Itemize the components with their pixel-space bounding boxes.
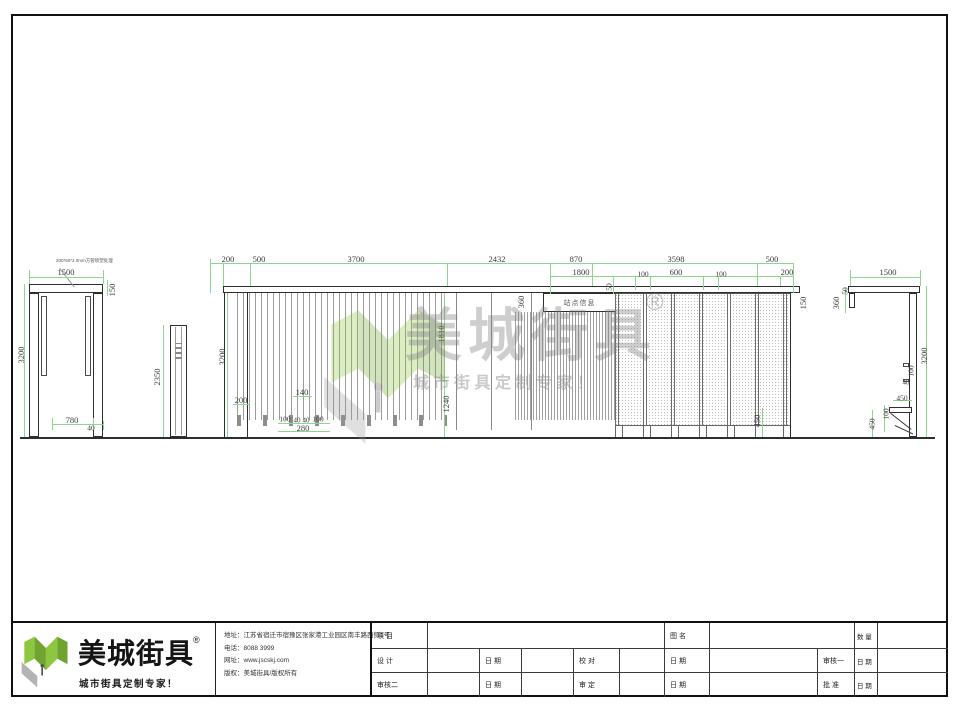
table-label-proofread: 校 对	[574, 649, 620, 672]
dimension-label: 1800	[573, 268, 590, 277]
dim-ext-line	[920, 270, 921, 286]
watermark-brand-text: 美城街具	[405, 308, 657, 365]
dim-ext-line	[850, 270, 851, 286]
dim-ext-line	[250, 263, 251, 286]
sign-frame-slot	[85, 296, 91, 376]
sign-frame-left-post	[29, 293, 39, 437]
brand-name: 美城街具	[78, 640, 194, 668]
sign-frame-slot	[41, 296, 47, 376]
brand-slogan: 城市街具定制专家！	[79, 676, 178, 690]
canopy-front-tab	[849, 293, 855, 308]
dimension-label: 50	[841, 287, 849, 295]
dimension-label: 1500	[880, 268, 897, 277]
dim-line	[762, 408, 763, 437]
sign-frame-top-bar	[29, 284, 103, 293]
drawing-sheet: 200*60*2.0mm方管喷塑处理 站点信息	[0, 0, 960, 704]
dim-ext-line	[635, 276, 636, 290]
table-label-review1: 审核一	[818, 649, 855, 672]
dimension-label: 870	[570, 255, 583, 264]
dimension-label: 450	[896, 394, 907, 402]
dimension-label: 100	[882, 408, 890, 419]
table-label-quantity: 数 量	[855, 623, 878, 648]
table-cell-empty	[878, 623, 948, 648]
dim-line	[163, 325, 164, 437]
dimension-label: 40	[903, 380, 910, 387]
registered-mark-icon: ®	[646, 291, 664, 315]
canopy-side-bar	[848, 286, 920, 293]
table-cell-empty	[878, 673, 948, 697]
dimension-label: 150	[799, 297, 808, 310]
watermark-tagline: 城市街具定制专家！	[413, 376, 598, 392]
dimension-label: 600	[670, 268, 683, 277]
dim-line	[29, 277, 103, 278]
dimension-label: 500	[253, 255, 266, 264]
dimension-label: 3700	[348, 255, 365, 264]
dimension-label: 50	[605, 283, 613, 291]
dimension-label: 100	[279, 415, 290, 423]
dimension-label: 3200	[218, 349, 227, 366]
table-label-date: 日 期	[855, 673, 878, 697]
table-cell-empty	[428, 649, 480, 672]
post-outline	[170, 325, 187, 437]
end-post-line	[790, 293, 791, 437]
dimension-label: 500	[766, 255, 779, 264]
table-cell-empty	[522, 673, 574, 697]
title-block: 美城街具 ® 城市街具定制专家！ 地址：江苏省宿迁市宿豫区张家港工业园区南丰路西…	[11, 621, 948, 697]
contact-address: 地址：江苏省宿迁市宿豫区张家港工业园区南丰路西侧1号	[224, 630, 370, 643]
dim-line	[227, 293, 228, 437]
dimension-label: 3200	[17, 347, 26, 364]
canopy-beam	[223, 286, 800, 293]
table-cell-empty	[710, 623, 855, 648]
table-cell-empty	[522, 649, 574, 672]
dimension-label: 150	[108, 284, 117, 297]
dimension-label: 2432	[489, 255, 506, 264]
table-label-verify: 审 定	[574, 673, 620, 697]
tube-spec-note: 200*60*2.0mm方管喷塑处理	[56, 258, 113, 264]
table-cell-empty	[710, 649, 818, 672]
dim-ext-line	[650, 276, 651, 290]
table-cell-empty	[620, 673, 665, 697]
dim-line	[850, 277, 920, 278]
dim-ext-line	[29, 270, 30, 284]
dim-ext-line	[447, 263, 448, 286]
table-label-date: 日 期	[665, 649, 710, 672]
table-label-approve: 批 准	[818, 673, 855, 697]
dim-ext-line	[550, 263, 551, 294]
dimension-label: 100	[907, 365, 915, 376]
dimension-label: 100	[637, 270, 648, 278]
contact-info: 地址：江苏省宿迁市宿豫区张家港工业园区南丰路西侧1号 电话：8088 3999 …	[215, 623, 370, 697]
dimension-label: 1500	[58, 268, 75, 277]
table-label-date: 日 期	[665, 673, 710, 697]
table-cell-empty	[878, 649, 948, 672]
dimension-label: 3200	[920, 348, 929, 365]
contact-copyright: 版权：美城街具/版权所有	[224, 668, 370, 681]
dim-ext-line	[223, 263, 224, 286]
bench-seat	[889, 407, 912, 413]
sign-frame-right-post	[93, 293, 103, 437]
contact-web: 网址：www.jscskj.com	[224, 655, 370, 668]
dim-ext-line	[103, 421, 104, 430]
dimension-label: 100	[715, 270, 726, 278]
dimension-label: 200	[222, 255, 235, 264]
table-label-drawing-name: 图 名	[665, 623, 710, 648]
company-logo-cell: 美城街具 ® 城市街具定制专家！	[11, 623, 215, 697]
dimension-label: 40	[87, 424, 95, 432]
contact-phone: 电话：8088 3999	[224, 643, 370, 656]
dim-ext-line	[703, 276, 704, 290]
dimension-label: 2350	[153, 369, 162, 386]
post-label-marks	[175, 343, 182, 359]
dimension-label: 200	[781, 268, 794, 277]
dim-ext-line	[52, 418, 53, 430]
company-logo-icon	[20, 634, 74, 690]
mesh-panel-feet	[615, 425, 790, 437]
table-label-design: 设 计	[372, 649, 428, 672]
dimension-label: 200	[235, 396, 248, 405]
registered-mark-icon: ®	[193, 635, 200, 645]
table-label-date: 日 期	[480, 649, 522, 672]
dim-ext-line	[103, 270, 104, 284]
dim-ext-line	[210, 259, 211, 293]
table-cell-empty	[710, 673, 818, 697]
dimension-label: 450	[868, 418, 876, 429]
table-label-date: 日 期	[855, 649, 878, 672]
title-table: 项 目 图 名 数 量 设 计 日 期 校 对 日 期 审核一 日 期	[370, 623, 948, 697]
table-cell-empty	[428, 673, 480, 697]
table-label-review2: 审核二	[372, 673, 428, 697]
dimension-label: 3598	[668, 255, 685, 264]
table-label-date: 日 期	[480, 673, 522, 697]
dim-ext-line	[592, 263, 593, 286]
dimension-label: 780	[66, 416, 79, 425]
dim-ext-line	[780, 276, 781, 286]
table-label-project: 项 目	[372, 623, 428, 648]
dimension-label: 360	[832, 297, 841, 310]
table-cell-empty	[428, 623, 665, 648]
table-cell-empty	[620, 649, 665, 672]
dimension-label: 450	[753, 415, 762, 428]
dim-ext-line	[757, 263, 758, 286]
